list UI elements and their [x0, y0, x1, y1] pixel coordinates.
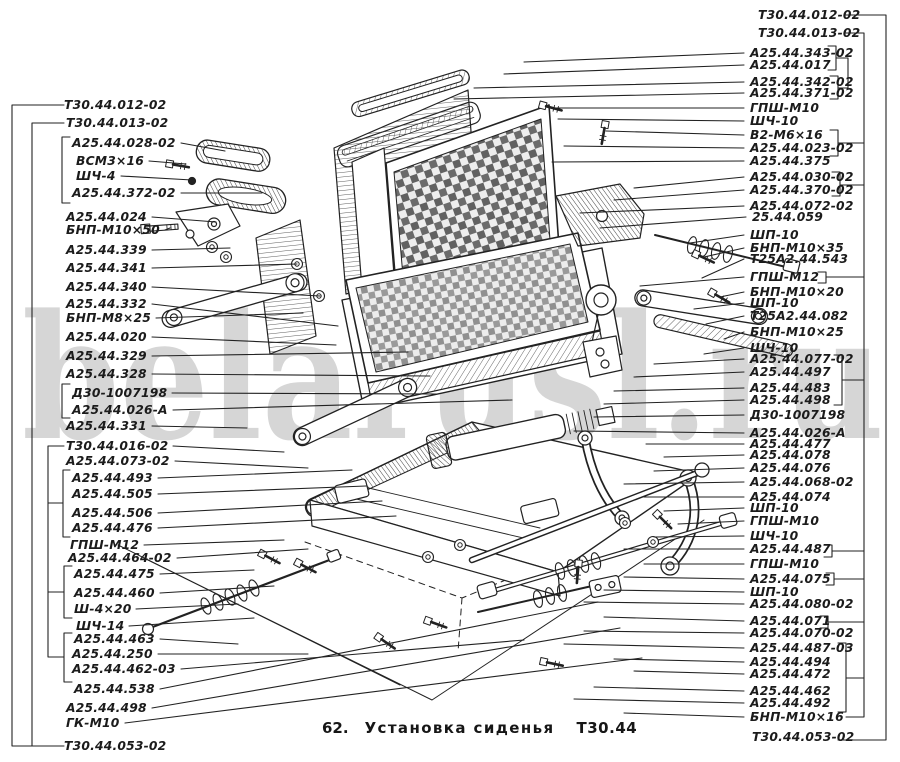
- part-label-right-18: ГПШ-М12: [750, 271, 819, 283]
- part-label-right-47: А25.44.472: [750, 668, 831, 680]
- leader-line-right-48: [594, 687, 744, 691]
- part-label-left-22: А25.44.505: [72, 488, 153, 500]
- figure-title: Установка сиденья: [365, 719, 555, 737]
- part-label-left-34: А25.44.538: [74, 683, 155, 695]
- leader-line-right-11: [634, 177, 744, 188]
- part-label-right-17: Т25А2.44.543: [750, 253, 848, 265]
- part-label-left-15: А25.44.328: [66, 368, 147, 380]
- part-label-left-30: ШЧ-14: [76, 620, 124, 632]
- part-label-right-49: А25.44.492: [750, 697, 831, 709]
- figure-model-code: Т30.44: [577, 719, 638, 737]
- part-label-left-0: Т30.44.012-02: [64, 99, 166, 111]
- part-label-right-22: БНП-М10×25: [750, 326, 844, 338]
- figure-number: 62.: [322, 719, 349, 737]
- leader-line-left-28: [160, 586, 274, 593]
- part-label-right-36: ГПШ-М10: [750, 515, 819, 527]
- part-label-left-2: А25.44.028-02: [72, 137, 176, 149]
- part-label-right-5: А25.44.371-02: [750, 87, 854, 99]
- part-label-left-5: А25.44.372-02: [72, 187, 176, 199]
- part-label-right-35: ШП-10: [750, 502, 799, 514]
- leader-line-right-3: [504, 65, 744, 74]
- catalog-page: belarusl.ru: [0, 0, 900, 762]
- leader-line-right-42: [584, 602, 744, 604]
- part-label-left-11: А25.44.332: [66, 298, 147, 310]
- part-label-left-10: А25.44.340: [66, 281, 147, 293]
- part-label-right-14: 25.44.059: [752, 211, 823, 223]
- leader-line-left-36: [125, 658, 642, 723]
- part-label-right-37: ШЧ-10: [750, 530, 798, 542]
- part-label-right-20: ШП-10: [750, 297, 799, 309]
- leader-line-left-8: [152, 248, 230, 250]
- leader-line-right-45: [564, 644, 744, 648]
- part-label-right-51: Т30.44.053-02: [752, 731, 854, 743]
- part-label-left-8: А25.44.339: [66, 244, 147, 256]
- leader-line-right-43: [604, 617, 744, 621]
- part-label-right-27: А25.44.498: [750, 394, 831, 406]
- part-label-right-12: А25.44.370-02: [750, 184, 854, 196]
- part-label-left-26: А25.44.464-02: [68, 552, 172, 564]
- part-label-left-32: А25.44.250: [72, 648, 153, 660]
- leader-line-right-5: [454, 93, 744, 99]
- part-label-left-33: А25.44.462-03: [72, 663, 176, 675]
- leader-line-right-2: [524, 53, 744, 62]
- part-label-left-17: А25.44.026-А: [72, 404, 168, 416]
- part-label-right-21: Т25А2.44.082: [750, 310, 848, 322]
- leader-line-left-26: [177, 549, 308, 558]
- leader-line-right-4: [474, 82, 744, 88]
- leader-line-right-44: [584, 631, 744, 633]
- part-label-right-3: А25.44.017: [750, 59, 831, 71]
- part-label-left-27: А25.44.475: [74, 568, 155, 580]
- part-label-right-33: А25.44.068-02: [750, 476, 854, 488]
- part-label-left-13: А25.44.020: [66, 331, 147, 343]
- part-label-left-35: А25.44.498: [66, 702, 147, 714]
- part-label-left-12: БНП-М8×25: [66, 312, 151, 324]
- figure-caption: 62. Установка сиденья Т30.44: [322, 719, 637, 737]
- part-label-left-18: А25.44.331: [66, 420, 147, 432]
- part-label-left-14: А25.44.329: [66, 350, 147, 362]
- part-label-left-25: ГПШ-М12: [70, 539, 139, 551]
- leader-line-left-27: [160, 570, 254, 574]
- part-label-right-40: А25.44.075: [750, 573, 831, 585]
- part-label-right-39: ГПШ-М10: [750, 558, 819, 570]
- part-label-left-1: Т30.44.013-02: [66, 117, 168, 129]
- leader-line-left-25: [144, 540, 284, 545]
- leader-line-left-34: [160, 602, 598, 689]
- part-label-left-3: ВСМ3×16: [76, 155, 144, 167]
- part-label-right-24: А25.44.077-02: [750, 353, 854, 365]
- part-label-left-24: А25.44.476: [72, 522, 153, 534]
- leader-line-right-37: [654, 536, 744, 537]
- part-label-left-29: Ш-4×20: [74, 603, 131, 615]
- part-label-right-15: ШП-10: [750, 229, 799, 241]
- part-label-left-6: А25.44.024: [66, 211, 147, 223]
- leader-line-left-4: [121, 176, 192, 180]
- leader-line-right-35: [664, 508, 744, 511]
- part-label-right-25: А25.44.497: [750, 366, 831, 378]
- part-label-left-7: БНП-М10×50: [66, 224, 160, 236]
- part-label-right-38: А25.44.487: [750, 543, 831, 555]
- leader-line-left-31: [160, 639, 238, 644]
- leader-line-right-41: [604, 590, 744, 592]
- part-label-left-36: ГК-М10: [66, 717, 120, 729]
- leader-line-left-35: [152, 628, 620, 708]
- leader-line-right-9: [564, 146, 744, 148]
- leader-line-right-40: [624, 577, 744, 579]
- part-label-right-11: А25.44.030-02: [750, 171, 854, 183]
- leader-line-right-7: [558, 119, 744, 121]
- part-label-left-4: ШЧ-4: [76, 170, 116, 182]
- part-label-right-9: А25.44.023-02: [750, 142, 854, 154]
- leader-line-left-30: [129, 618, 254, 626]
- part-label-left-37: Т30.44.053-02: [64, 740, 166, 752]
- part-label-left-21: А25.44.493: [72, 472, 153, 484]
- part-label-right-50: БНП-М10×16: [750, 711, 844, 723]
- leader-line-right-12: [614, 190, 744, 200]
- part-label-left-19: Т30.44.016-02: [66, 440, 168, 452]
- armrest-pads: [195, 139, 288, 216]
- part-label-right-10: А25.44.375: [750, 155, 831, 167]
- part-label-left-31: А25.44.463: [74, 633, 155, 645]
- part-label-left-9: А25.44.341: [66, 262, 147, 274]
- leader-line-right-10: [552, 161, 744, 162]
- part-label-right-6: ГПШ-М10: [750, 102, 819, 114]
- part-label-right-44: А25.44.070-02: [750, 627, 854, 639]
- part-label-right-8: В2-М6×16: [750, 129, 823, 141]
- part-label-left-28: А25.44.460: [74, 587, 155, 599]
- part-label-right-7: ШЧ-10: [750, 115, 798, 127]
- part-label-right-28: Д30-1007198: [750, 409, 845, 421]
- leader-line-right-46: [614, 659, 744, 662]
- leader-line-right-15: [690, 235, 744, 243]
- leader-line-right-49: [574, 699, 744, 703]
- part-label-right-1: Т30.44.013-02: [758, 27, 860, 39]
- part-label-right-42: А25.44.080-02: [750, 598, 854, 610]
- part-label-right-45: А25.44.487-03: [750, 642, 854, 654]
- part-label-right-0: Т30.44.012-02: [758, 9, 860, 21]
- part-label-right-31: А25.44.078: [750, 449, 831, 461]
- part-label-right-32: А25.44.076: [750, 462, 831, 474]
- part-label-left-16: Д30-1007198: [72, 387, 167, 399]
- leader-line-right-8: [606, 131, 744, 135]
- part-label-left-23: А25.44.506: [72, 507, 153, 519]
- part-label-left-20: А25.44.073-02: [66, 455, 170, 467]
- leader-line-right-47: [634, 671, 744, 674]
- leader-line-right-50: [624, 713, 744, 717]
